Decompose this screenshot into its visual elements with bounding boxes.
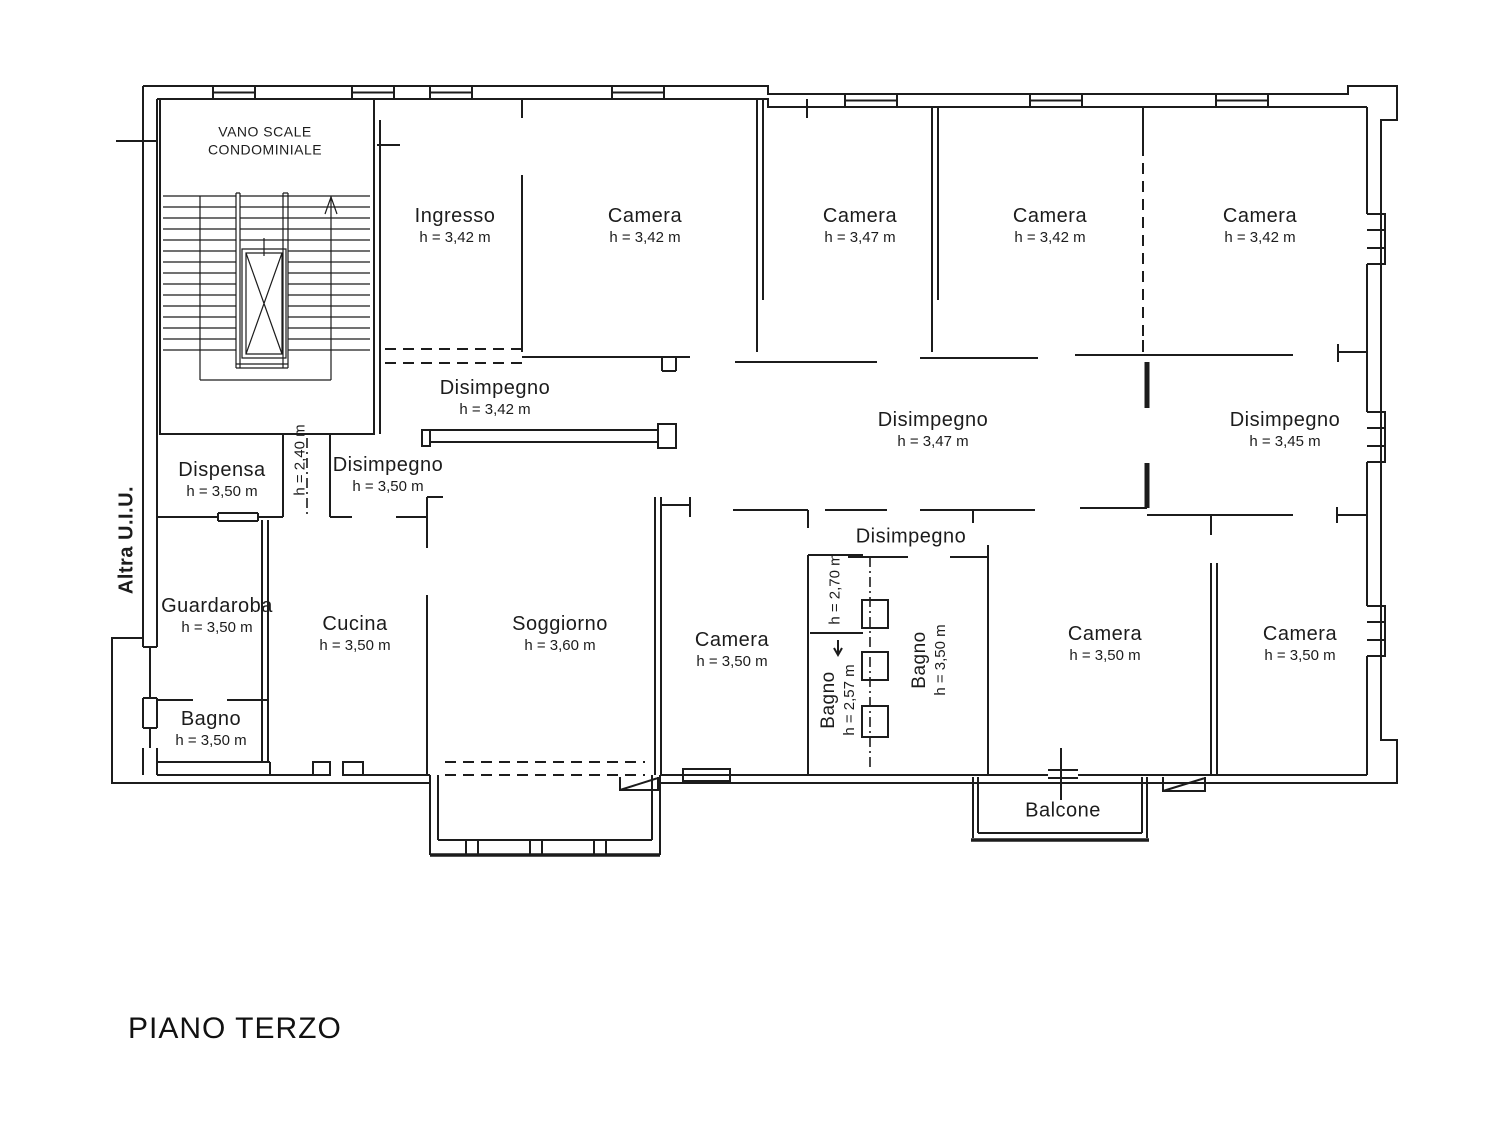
room-label-soggiorno: Soggiorno h = 3,60 m: [512, 612, 608, 656]
room-label-vano-scale: VANO SCALE CONDOMINIALE: [208, 124, 322, 159]
room-label-vano270: h = 2,70 m: [827, 553, 846, 624]
room-label-camera1: Camera h = 3,42 m: [608, 204, 682, 248]
room-label-camera3: Camera h = 3,42 m: [1013, 204, 1087, 248]
room-label-camera-sud1: Camera h = 3,50 m: [695, 628, 769, 672]
room-label-balcone: Balcone: [1025, 799, 1101, 824]
elevator-shaft: [236, 193, 288, 368]
room-label-ingresso: Ingresso h = 3,42 m: [415, 204, 496, 248]
room-label-dispensa: Dispensa h = 3,50 m: [178, 458, 265, 502]
room-label-disimpegno-ovest: Disimpegno h = 3,50 m: [333, 453, 444, 497]
floorplan-canvas: VANO SCALE CONDOMINIALE Ingresso h = 3,4…: [0, 0, 1510, 1130]
room-label-disimpegno-nord: Disimpegno h = 3,42 m: [440, 376, 551, 420]
room-label-bagno-ovest: Bagno h = 3,50 m: [175, 707, 246, 751]
adjacent-unit-label: Altra U.I.U.: [116, 486, 139, 594]
room-label-bagno-piccolo: Bagno h = 2,57 m: [817, 664, 860, 735]
room-label-cucina: Cucina h = 3,50 m: [319, 612, 390, 656]
room-label-camera4: Camera h = 3,42 m: [1223, 204, 1297, 248]
room-label-disimpegno-sud: Disimpegno: [856, 525, 967, 550]
room-label-corridoio-h240: h = 2,40 m: [292, 424, 311, 495]
room-label-disimpegno-est: Disimpegno h = 3,45 m: [1230, 408, 1341, 452]
stair-treads: [163, 196, 370, 380]
room-label-guardaroba: Guardaroba h = 3,50 m: [161, 594, 273, 638]
elevator: [242, 238, 286, 358]
interior-walls: [157, 99, 1367, 800]
floorplan-drawing: [0, 0, 1510, 1130]
room-label-bagno-grande: Bagno h = 3,50 m: [908, 624, 951, 695]
room-label-camera2: Camera h = 3,47 m: [823, 204, 897, 248]
room-label-camera-sud3: Camera h = 3,50 m: [1263, 622, 1337, 666]
room-label-camera-sud2: Camera h = 3,50 m: [1068, 622, 1142, 666]
plan-title: PIANO TERZO: [128, 1012, 342, 1046]
bay-window: [430, 775, 660, 855]
room-label-disimpegno-centro: Disimpegno h = 3,47 m: [878, 408, 989, 452]
